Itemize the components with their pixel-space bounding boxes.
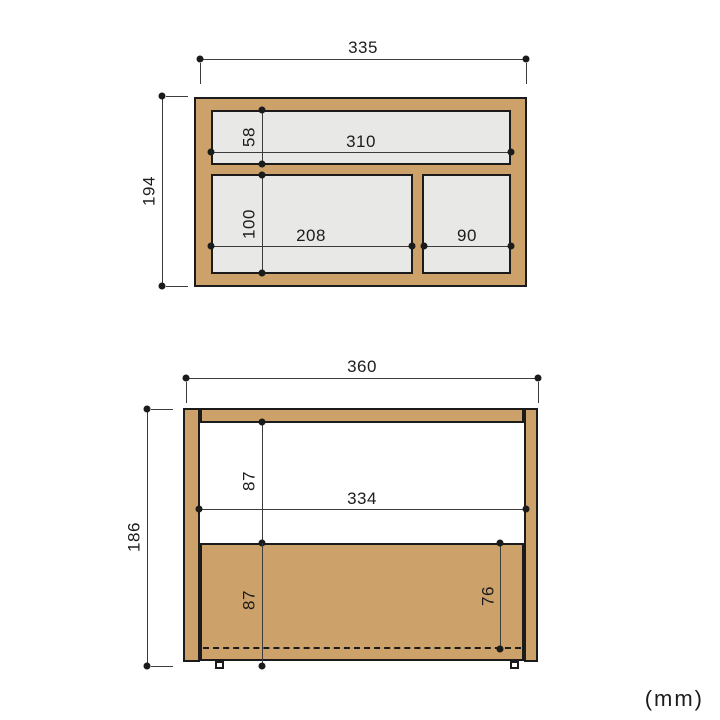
dim-extension-line [526, 63, 527, 84]
front-view-hidden-edge-dashed-line [203, 647, 521, 649]
dim-label-front-overall-height: 186 [126, 522, 143, 552]
dim-endpoint-dot [409, 243, 416, 250]
dim-line-lower-section-height [262, 543, 263, 666]
dim-endpoint-dot [259, 663, 266, 670]
dim-endpoint-dot [183, 375, 190, 382]
dim-endpoint-dot [159, 93, 166, 100]
dim-endpoint-dot [421, 243, 428, 250]
dim-endpoint-dot [208, 149, 215, 156]
dim-line-inner-width-front [199, 509, 526, 510]
dim-line-overall-width-top [200, 59, 526, 60]
dim-endpoint-dot [159, 283, 166, 290]
dim-label-front-inner-width: 334 [347, 490, 377, 507]
dim-label-bottom-right-width: 90 [457, 227, 477, 244]
dim-extension-line [166, 96, 188, 97]
dim-label-front-overall-width: 360 [347, 358, 377, 375]
dim-line-top-compartment-depth [262, 110, 263, 164]
dim-line-overall-height [147, 409, 148, 666]
front-view-right-foot [510, 661, 519, 669]
front-view-left-foot [215, 661, 224, 669]
dim-endpoint-dot [259, 161, 266, 168]
dim-endpoint-dot [144, 663, 151, 670]
dim-extension-line [186, 382, 187, 403]
dim-line-inner-width-top [211, 152, 511, 153]
dim-endpoint-dot [259, 107, 266, 114]
dim-label-bottom-compartment-depth: 100 [241, 209, 258, 239]
dim-line-upper-opening-height [262, 422, 263, 543]
dim-endpoint-dot [508, 243, 515, 250]
dim-endpoint-dot [523, 56, 530, 63]
dim-extension-line [166, 286, 188, 287]
dim-line-bottom-right-width [424, 246, 511, 247]
front-view-top-rail [200, 408, 524, 423]
dim-endpoint-dot [508, 149, 515, 156]
front-view-left-side-panel [183, 408, 200, 662]
front-view-right-side-panel [524, 408, 538, 662]
dim-endpoint-dot [497, 540, 504, 547]
dim-label-upper-opening-height: 87 [241, 471, 258, 491]
dim-extension-line [538, 382, 539, 403]
dim-endpoint-dot [259, 172, 266, 179]
dim-extension-line [200, 63, 201, 84]
dim-endpoint-dot [523, 506, 530, 513]
dim-label-bottom-left-width: 208 [296, 227, 326, 244]
dim-endpoint-dot [196, 506, 203, 513]
dim-line-bottom-left-width [211, 246, 412, 247]
unit-label: (mm) [645, 686, 704, 712]
dim-endpoint-dot [497, 646, 504, 653]
dim-endpoint-dot [208, 243, 215, 250]
dim-label-top-overall-width: 335 [348, 39, 378, 56]
dim-endpoint-dot [144, 406, 151, 413]
dim-label-right-section-height: 76 [480, 586, 497, 606]
dim-label-top-overall-depth: 194 [141, 176, 158, 206]
dim-endpoint-dot [259, 270, 266, 277]
dim-extension-line [151, 409, 173, 410]
dim-endpoint-dot [259, 419, 266, 426]
top-view-vertical-divider [411, 174, 424, 274]
dim-line-bottom-compartment-depth [262, 175, 263, 273]
dim-endpoint-dot [535, 375, 542, 382]
dim-label-lower-section-height: 87 [241, 590, 258, 610]
dim-label-top-inner-width: 310 [346, 133, 376, 150]
top-view-horizontal-divider [211, 163, 511, 176]
dim-line-right-section-height [500, 543, 501, 649]
dim-line-overall-width-front [186, 378, 538, 379]
dim-extension-line [151, 666, 173, 667]
dimension-drawing-canvas: 335 194 310 58 100 208 90 [0, 0, 720, 720]
dim-endpoint-dot [197, 56, 204, 63]
dim-label-top-compartment-depth: 58 [241, 127, 258, 147]
dim-line-overall-depth [162, 96, 163, 286]
